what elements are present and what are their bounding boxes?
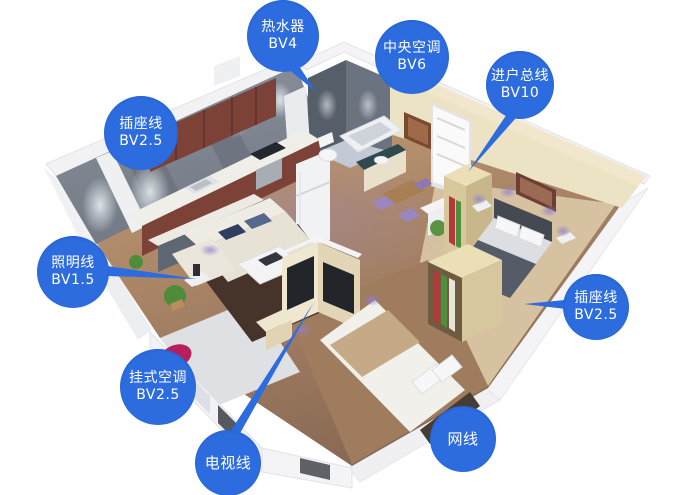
entry-plant [430,220,446,236]
label-text: 挂式空调 [129,370,187,388]
label-text: 照明线 [51,255,95,273]
label-socket-line-left: 插座线 BV2.5 [104,96,178,170]
label-text: 网线 [447,430,478,449]
label-text: 进户总线 [491,68,549,86]
label-spec: BV2.5 [574,307,618,325]
label-spec: BV10 [501,85,540,103]
label-spec: BV2.5 [119,133,163,151]
label-spec: BV4 [268,36,297,54]
label-lighting-line: 照明线 BV1.5 [37,236,109,308]
label-spec: BV6 [397,57,426,75]
label-central-ac: 中央空调 BV6 [375,20,449,94]
label-incoming-main: 进户总线 BV10 [486,51,554,119]
label-wall-mounted-ac: 挂式空调 BV2.5 [120,349,196,425]
plant [129,255,143,269]
label-network-line: 网线 [430,406,496,472]
label-tv-line: 电视线 [195,430,261,495]
label-text: 插座线 [119,116,163,134]
apartment-render [0,0,688,495]
wardrobe [428,244,502,342]
label-spec: BV1.5 [51,272,95,290]
label-text: 热水器 [261,19,305,37]
label-socket-line-right: 插座线 BV2.5 [563,274,629,340]
label-text: 中央空调 [383,40,441,58]
label-text: 插座线 [574,290,618,308]
label-water-heater: 热水器 BV4 [247,0,319,72]
label-spec: BV2.5 [136,387,180,405]
label-text: 电视线 [205,454,252,473]
wiring-diagram-canvas: 热水器 BV4 中央空调 BV6 进户总线 BV10 插座线 BV2.5 照明线… [0,0,688,495]
